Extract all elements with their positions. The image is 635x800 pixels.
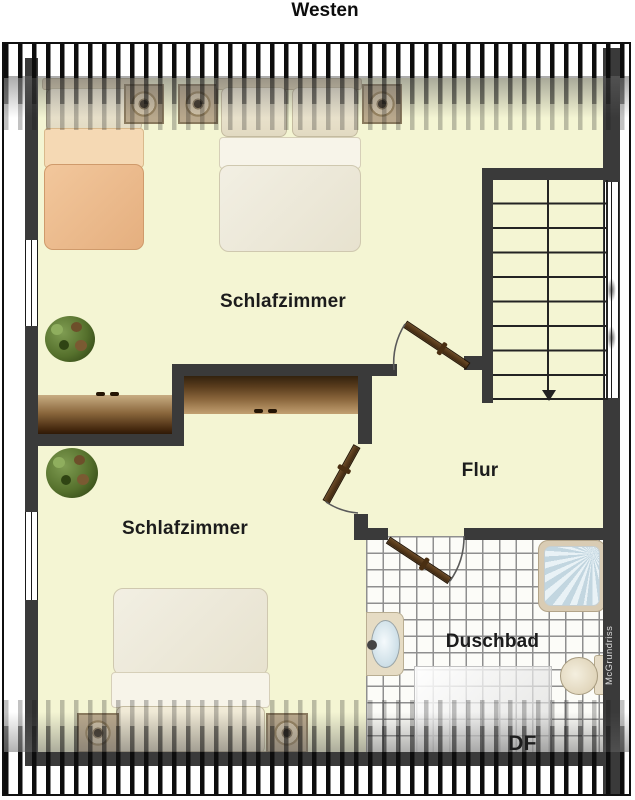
orientation-title: Westen [250,0,400,22]
plan-frame [2,42,631,796]
floorplan: Schlafzimmer Schlafzimmer Flur Duschbad … [0,0,635,800]
